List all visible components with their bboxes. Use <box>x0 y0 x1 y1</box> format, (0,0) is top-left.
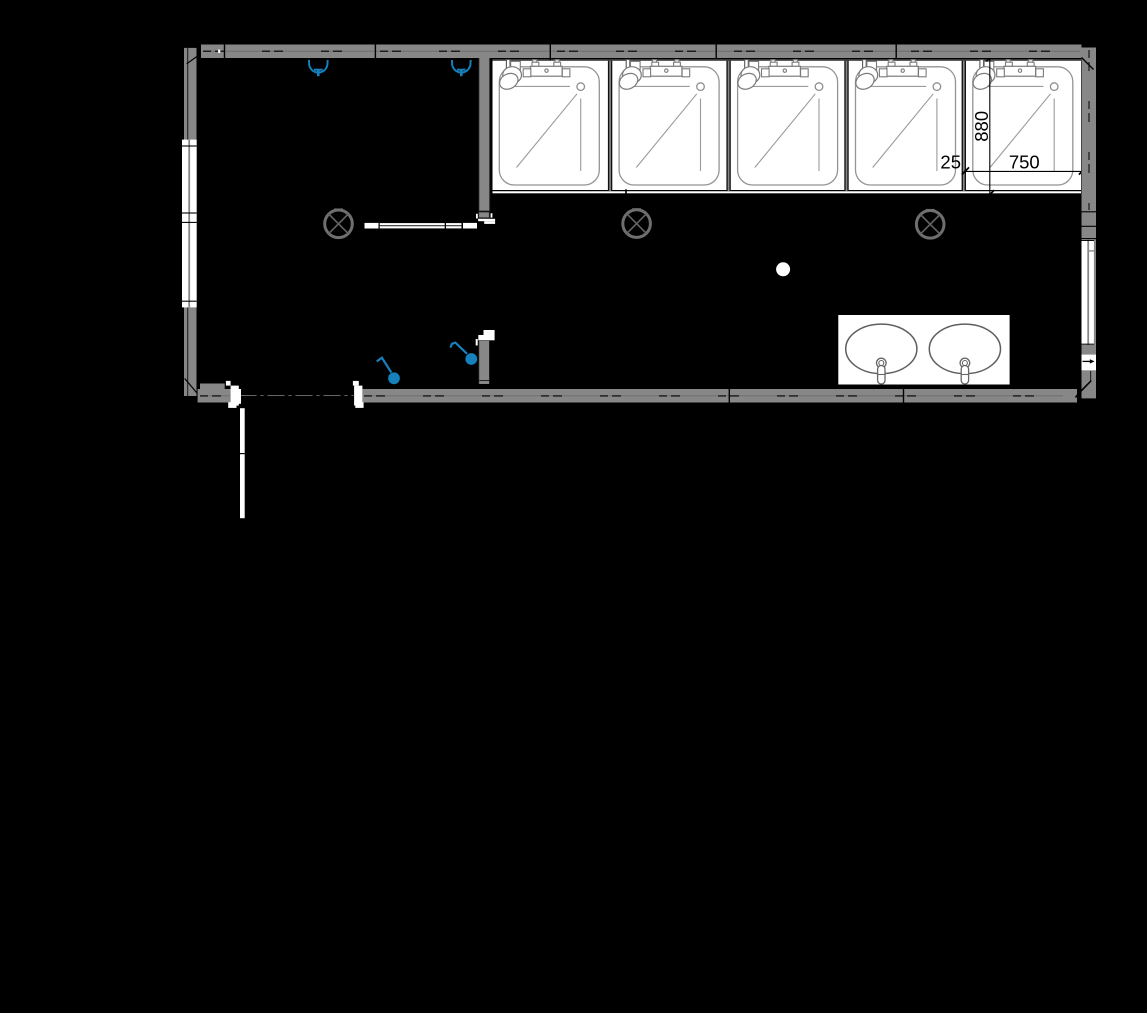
svg-text:880: 880 <box>971 111 992 142</box>
svg-text:750: 750 <box>1009 151 1040 172</box>
svg-text:25: 25 <box>940 151 961 172</box>
